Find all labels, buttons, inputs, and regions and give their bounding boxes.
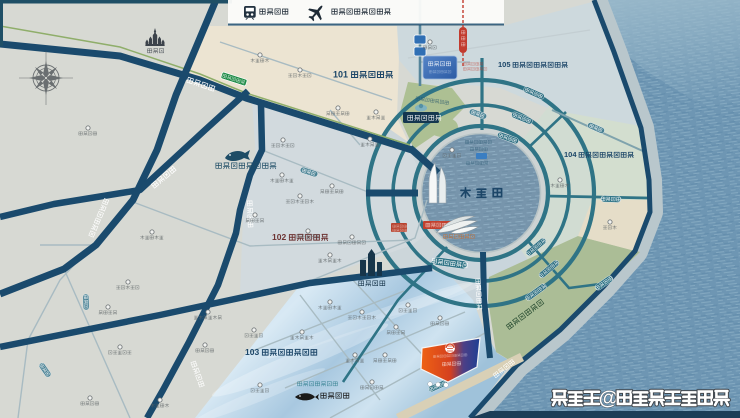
svg-text:104: 104	[564, 150, 577, 159]
svg-text:101: 101	[333, 69, 348, 79]
svg-text:102: 102	[272, 232, 286, 242]
svg-text:@: @	[599, 388, 619, 410]
svg-text:103: 103	[245, 347, 259, 357]
svg-text:105: 105	[498, 60, 511, 69]
